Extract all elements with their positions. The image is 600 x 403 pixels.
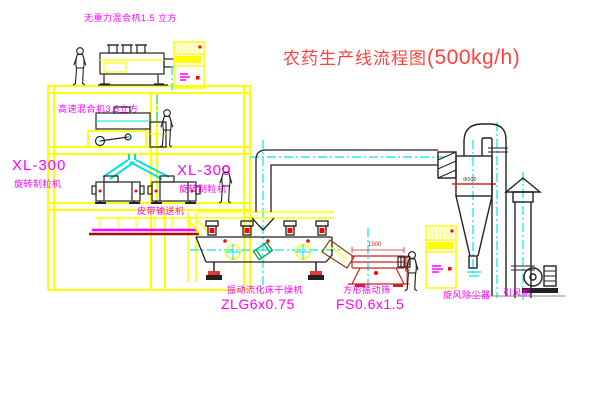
diagram-title: 农药生产线流程图(500kg/h) bbox=[283, 44, 520, 70]
belt-conveyor bbox=[89, 218, 208, 236]
sieve-length-dim: 1500 bbox=[368, 242, 381, 248]
sieve-name-label: 方形振动筛 bbox=[343, 286, 391, 295]
granulator-left bbox=[92, 176, 144, 203]
diagram-title-capacity: (500kg/h) bbox=[427, 46, 520, 69]
cyclone-label: 旋风除尘器 bbox=[443, 291, 491, 300]
vibrating-sieve bbox=[322, 240, 410, 287]
fluid-bed-dryer bbox=[196, 150, 438, 280]
dryer-name-label: 振动流化床干燥机 bbox=[227, 286, 303, 295]
cyclone-diameter-dim: Φ500 bbox=[463, 177, 477, 183]
belt-conveyor-label: 皮带输送机 bbox=[137, 207, 185, 216]
spring-mounts bbox=[206, 221, 328, 235]
y-chute bbox=[103, 154, 169, 179]
gravity-mixer-label: 无重力混合机1.5 立方 bbox=[84, 14, 177, 23]
fan-label: 引风机 bbox=[503, 289, 532, 298]
granulator-left-model-label: XL-300 bbox=[12, 158, 66, 173]
process-flow-diagram: 无重力混合机1.5 立方 农药生产线流程图(500kg/h) 高速混合机3.5立… bbox=[0, 0, 600, 403]
person-figure-top bbox=[73, 48, 86, 85]
dryer-legs bbox=[206, 262, 324, 280]
sieve-model-label: FS0.6x1.5 bbox=[336, 297, 404, 311]
granulator-right-model-label: XL-300 bbox=[177, 163, 231, 178]
granulator-right-name-label: 旋转制粒机 bbox=[179, 185, 227, 194]
granulator-left-name-label: 旋转制粒机 bbox=[14, 180, 62, 189]
dryer-model-label: ZLG6x0.75 bbox=[221, 297, 295, 311]
high-speed-mixer-label: 高速混合机3.5立方 bbox=[58, 105, 139, 114]
control-cabinet-2 bbox=[426, 226, 456, 288]
diagram-title-text: 农药生产线流程图 bbox=[283, 49, 427, 68]
sieve-height-dim: 745 bbox=[403, 262, 409, 272]
gravity-mixer bbox=[98, 45, 174, 85]
control-cabinet-1 bbox=[174, 42, 204, 88]
vibration-motor-symbol bbox=[225, 244, 311, 260]
